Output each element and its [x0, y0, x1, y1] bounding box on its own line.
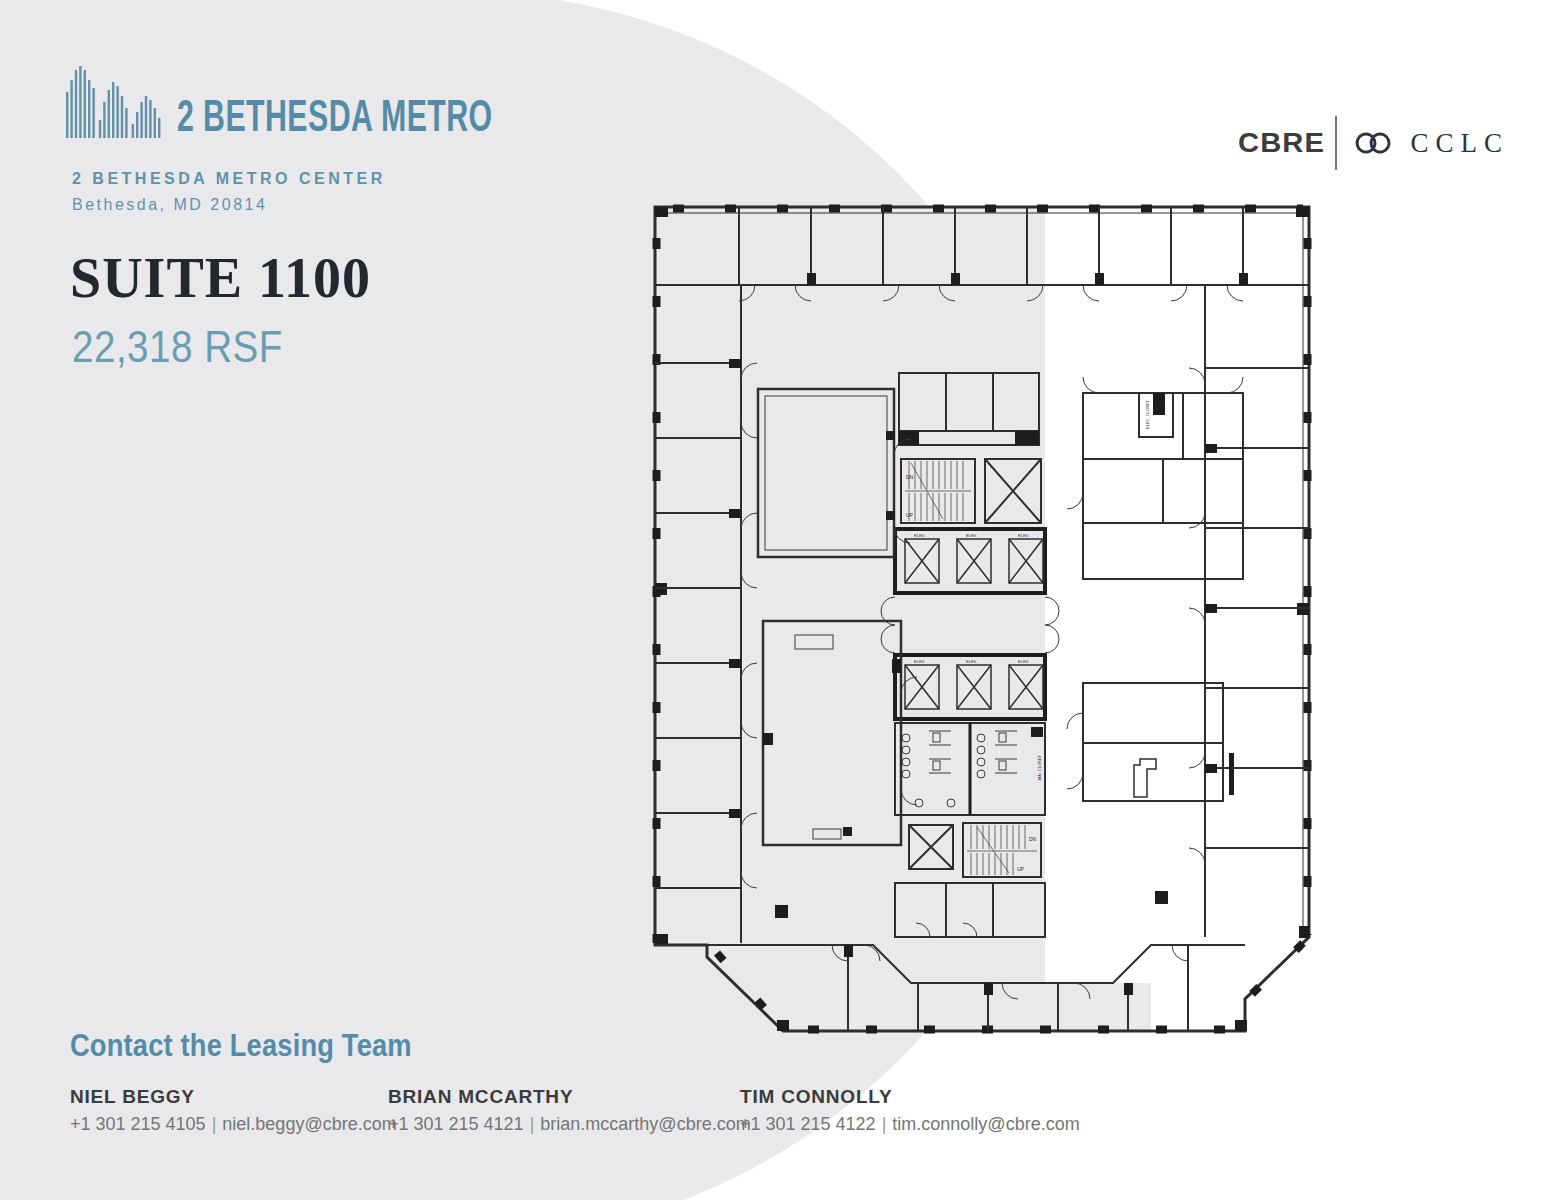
elev-label: ELEV.	[1018, 659, 1029, 664]
contact-email: niel.beggy@cbre.com	[222, 1114, 396, 1134]
detail-separator: |	[876, 1114, 893, 1134]
building-address-line1: 2 BETHESDA METRO CENTER	[72, 170, 386, 188]
contact-phone: +1 301 215 4105	[70, 1114, 206, 1134]
contact-phone: +1 301 215 4122	[740, 1114, 876, 1134]
contact-details: +1 301 215 4122|tim.connolly@cbre.com	[740, 1114, 1080, 1135]
column-block	[1155, 891, 1168, 904]
contact-details: +1 301 215 4105|niel.beggy@cbre.com	[70, 1114, 397, 1135]
building-name-text: 2 BETHESDA METRO	[177, 91, 493, 142]
contact-person-3: TIM CONNOLLY +1 301 215 4122|tim.connoll…	[740, 1086, 1080, 1135]
non-suite-fill	[1045, 207, 1309, 1031]
building-logo	[66, 58, 166, 142]
suite-title: SUITE 1100	[70, 246, 371, 310]
elev-label: ELEV.	[966, 659, 977, 664]
plan-bar-marker	[1229, 753, 1234, 795]
contact-heading: Contact the Leasing Team	[70, 1028, 434, 1061]
contact-email: tim.connolly@cbre.com	[892, 1114, 1079, 1134]
detail-separator: |	[524, 1114, 541, 1134]
cclc-rings-icon	[1353, 126, 1395, 160]
contact-person-1: NIEL BEGGY +1 301 215 4105|niel.beggy@cb…	[70, 1086, 397, 1135]
detail-separator: |	[206, 1114, 223, 1134]
stair2-up-label: UP	[1017, 866, 1025, 872]
column-block	[775, 905, 788, 918]
cclc-logo: CCLC	[1411, 128, 1510, 159]
logo-divider	[1335, 116, 1337, 170]
elev-label: ELEV.	[966, 533, 977, 538]
stair2-dn-label: DN	[1029, 836, 1037, 842]
jan-closet-label: JAN. CLOSET	[1037, 755, 1042, 781]
contact-person-2: BRIAN MCCARTHY +1 301 215 4121|brian.mcc…	[388, 1086, 751, 1135]
contact-email: brian.mccarthy@cbre.com	[540, 1114, 750, 1134]
stair-up-label: UP	[906, 512, 914, 518]
stair-dn-label: DN	[906, 474, 914, 480]
building-name: 2 BETHESDA METRO	[177, 100, 562, 142]
contact-name: TIM CONNOLLY	[740, 1086, 1080, 1108]
elec-closet-label: ELEC. CLOSET	[1145, 400, 1150, 429]
cbre-logo: CBRE	[1238, 128, 1325, 159]
elev-label: ELEV.	[914, 533, 925, 538]
suite-area: 22,318 RSF	[72, 322, 301, 370]
elev-label: ELEV.	[1018, 533, 1029, 538]
contact-name: NIEL BEGGY	[70, 1086, 397, 1108]
contact-name: BRIAN MCCARTHY	[388, 1086, 751, 1108]
skyline-logo-icon	[66, 58, 166, 138]
building-address-line2: Bethesda, MD 20814	[72, 196, 267, 214]
partner-logos: CBRE CCLC	[1238, 116, 1509, 170]
leasing-flyer-page: { "brand": { "building_name": "2 BETHESD…	[0, 0, 1553, 1200]
contact-phone: +1 301 215 4121	[388, 1114, 524, 1134]
elev-label: ELEV.	[914, 659, 925, 664]
floor-plan: DN UP ELEV. ELEV. ELEV.	[643, 193, 1323, 1038]
contact-details: +1 301 215 4121|brian.mccarthy@cbre.com	[388, 1114, 751, 1135]
